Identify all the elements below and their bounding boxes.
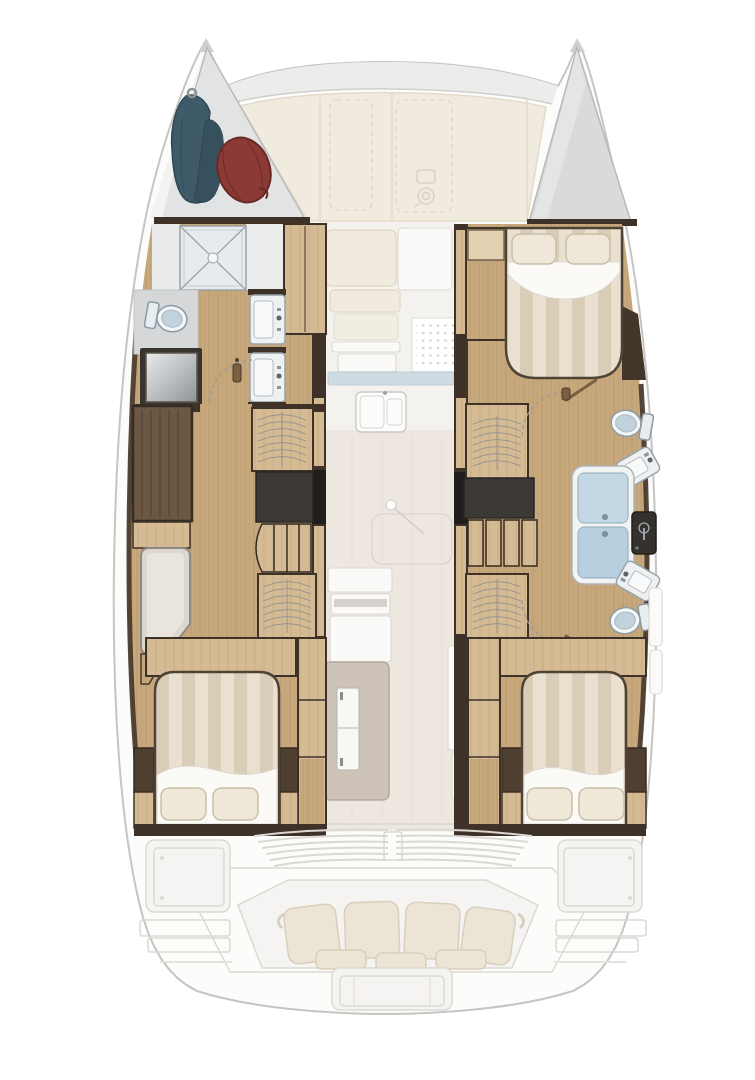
shower-tray [146, 353, 197, 402]
galley-counter-edge [328, 372, 454, 385]
vanity-sink [248, 289, 286, 344]
counter-inset [334, 599, 387, 607]
port-aft-cabin [134, 638, 326, 836]
pillow [213, 788, 258, 820]
port-forward-bulkhead [154, 217, 310, 224]
chart-table [334, 314, 398, 340]
nightstand [502, 748, 522, 792]
nightstand [280, 748, 298, 792]
deck-hatch-x [180, 226, 246, 290]
pillow [161, 788, 206, 820]
door-handle [602, 514, 608, 520]
deck-strip [246, 224, 284, 290]
side-deck-step [649, 588, 662, 646]
pillow [579, 788, 624, 820]
stairwell-opening [312, 470, 326, 524]
companionway-stairs [256, 472, 313, 572]
cupboard-column [468, 638, 500, 828]
headboard-panel [500, 638, 646, 676]
aft-wall [454, 824, 646, 836]
door-post [562, 388, 570, 400]
fridge-door [337, 688, 359, 770]
aft-counter [328, 568, 392, 592]
inner-wall-wood [456, 526, 466, 634]
hanging-locker [258, 574, 316, 638]
side-post [134, 792, 154, 828]
door-post [233, 364, 241, 382]
transom-platform [332, 968, 452, 1010]
inner-wall-wood [456, 230, 466, 334]
nightstand [626, 748, 646, 792]
wardrobe [133, 406, 192, 521]
catamaran-floor-plan-page [0, 0, 755, 1080]
side-post [626, 792, 646, 828]
forward-seat [326, 230, 396, 286]
hanging-locker [466, 574, 528, 638]
deck-strip [152, 224, 180, 290]
catamaran-floor-plan [0, 0, 755, 1080]
seat-pad [436, 950, 486, 969]
door-handle [602, 531, 608, 537]
door-threshold [200, 404, 252, 412]
counter-band [332, 342, 400, 352]
headboard-panel [146, 638, 296, 676]
door-knob [235, 358, 239, 362]
wardrobe [466, 228, 506, 340]
starboard-aft-cabin [454, 638, 646, 836]
chart-seat [330, 290, 400, 312]
tech-locker [632, 512, 656, 554]
stair-treads [256, 524, 311, 572]
galley-double-sink [356, 391, 406, 432]
inner-wall-wood [456, 398, 466, 468]
fridge-handle [340, 758, 343, 766]
fridge-unit [324, 662, 389, 800]
salon [320, 222, 466, 832]
stove-grate-dots [416, 322, 454, 368]
stair-landing [256, 472, 313, 522]
pillow [527, 788, 572, 820]
aft-counter [330, 616, 391, 662]
forward-cabinet [284, 224, 326, 334]
helm-console [558, 840, 642, 912]
pillow [512, 234, 556, 264]
side-post [502, 792, 522, 828]
seat-pad [316, 950, 366, 969]
hanging-locker [252, 408, 313, 471]
vanity-sink [248, 347, 286, 408]
aft-wall [134, 824, 326, 836]
side-deck-step [650, 650, 662, 694]
locker-shelf [133, 522, 190, 548]
fridge-handle [340, 692, 343, 700]
helm-console [146, 840, 230, 912]
port-hull [128, 224, 326, 836]
stair-landing [464, 478, 534, 518]
hanging-locker [466, 404, 528, 481]
starboard-hull [454, 224, 662, 836]
nightstand [134, 748, 154, 792]
side-post [280, 792, 298, 828]
pillow [566, 234, 610, 264]
counter-band [338, 354, 396, 372]
forward-panel [398, 228, 452, 290]
cupboard-column [298, 638, 326, 828]
